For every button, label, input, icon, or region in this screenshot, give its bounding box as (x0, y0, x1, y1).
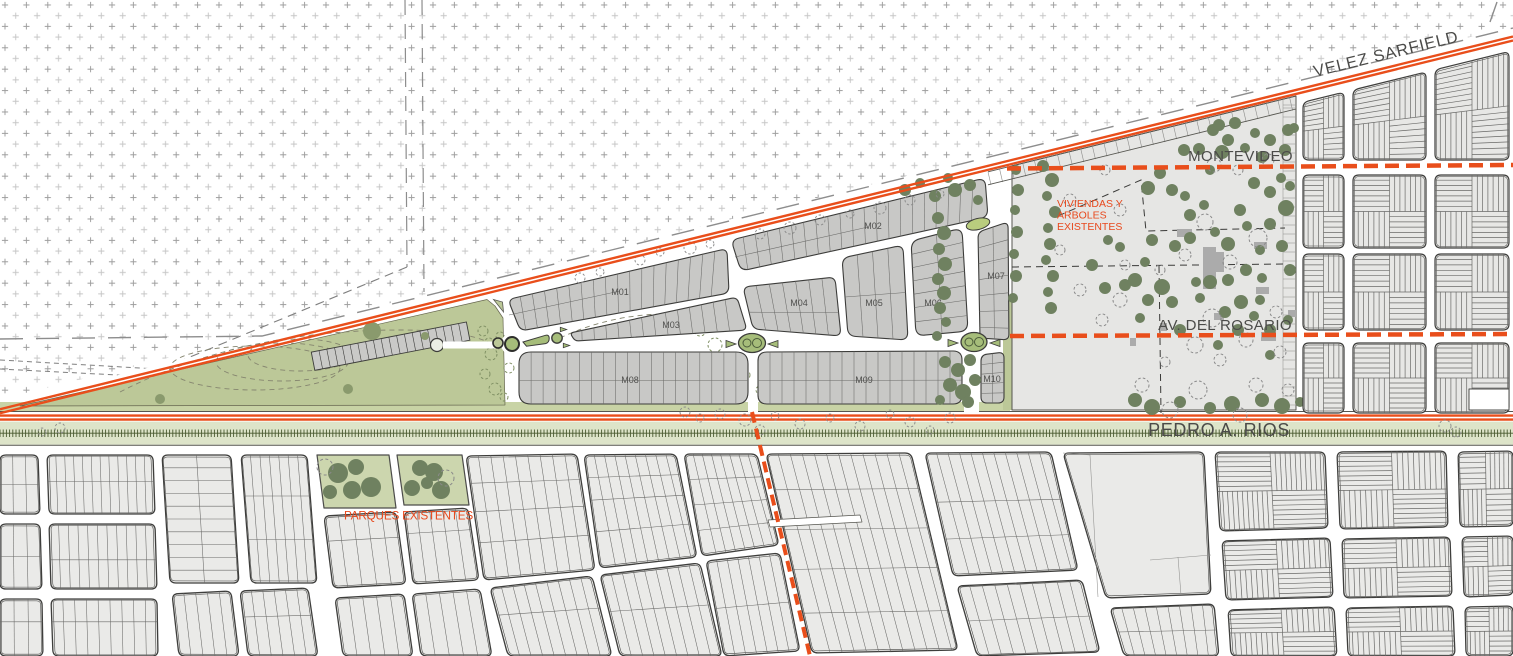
svg-text:MONTEVIDEO: MONTEVIDEO (1188, 148, 1293, 165)
svg-text:EXISTENTES: EXISTENTES (1057, 221, 1122, 233)
svg-text:VIVIENDAS Y: VIVIENDAS Y (1057, 198, 1123, 210)
svg-text:M02: M02 (864, 221, 882, 231)
svg-text:PEDRO A. RIOS: PEDRO A. RIOS (1148, 420, 1290, 440)
svg-text:M07: M07 (987, 271, 1005, 281)
svg-text:M03: M03 (662, 320, 680, 330)
svg-text:M04: M04 (790, 298, 808, 308)
svg-text:M05: M05 (865, 298, 883, 308)
svg-text:M10: M10 (983, 374, 1001, 384)
svg-text:PARQUES EXISTENTES: PARQUES EXISTENTES (344, 509, 473, 523)
svg-text:M01: M01 (611, 287, 629, 297)
svg-text:M08: M08 (621, 375, 639, 385)
svg-text:ARBOLES: ARBOLES (1057, 210, 1107, 222)
svg-text:AV. DEL ROSARIO: AV. DEL ROSARIO (1158, 317, 1292, 334)
svg-text:M09: M09 (855, 375, 873, 385)
